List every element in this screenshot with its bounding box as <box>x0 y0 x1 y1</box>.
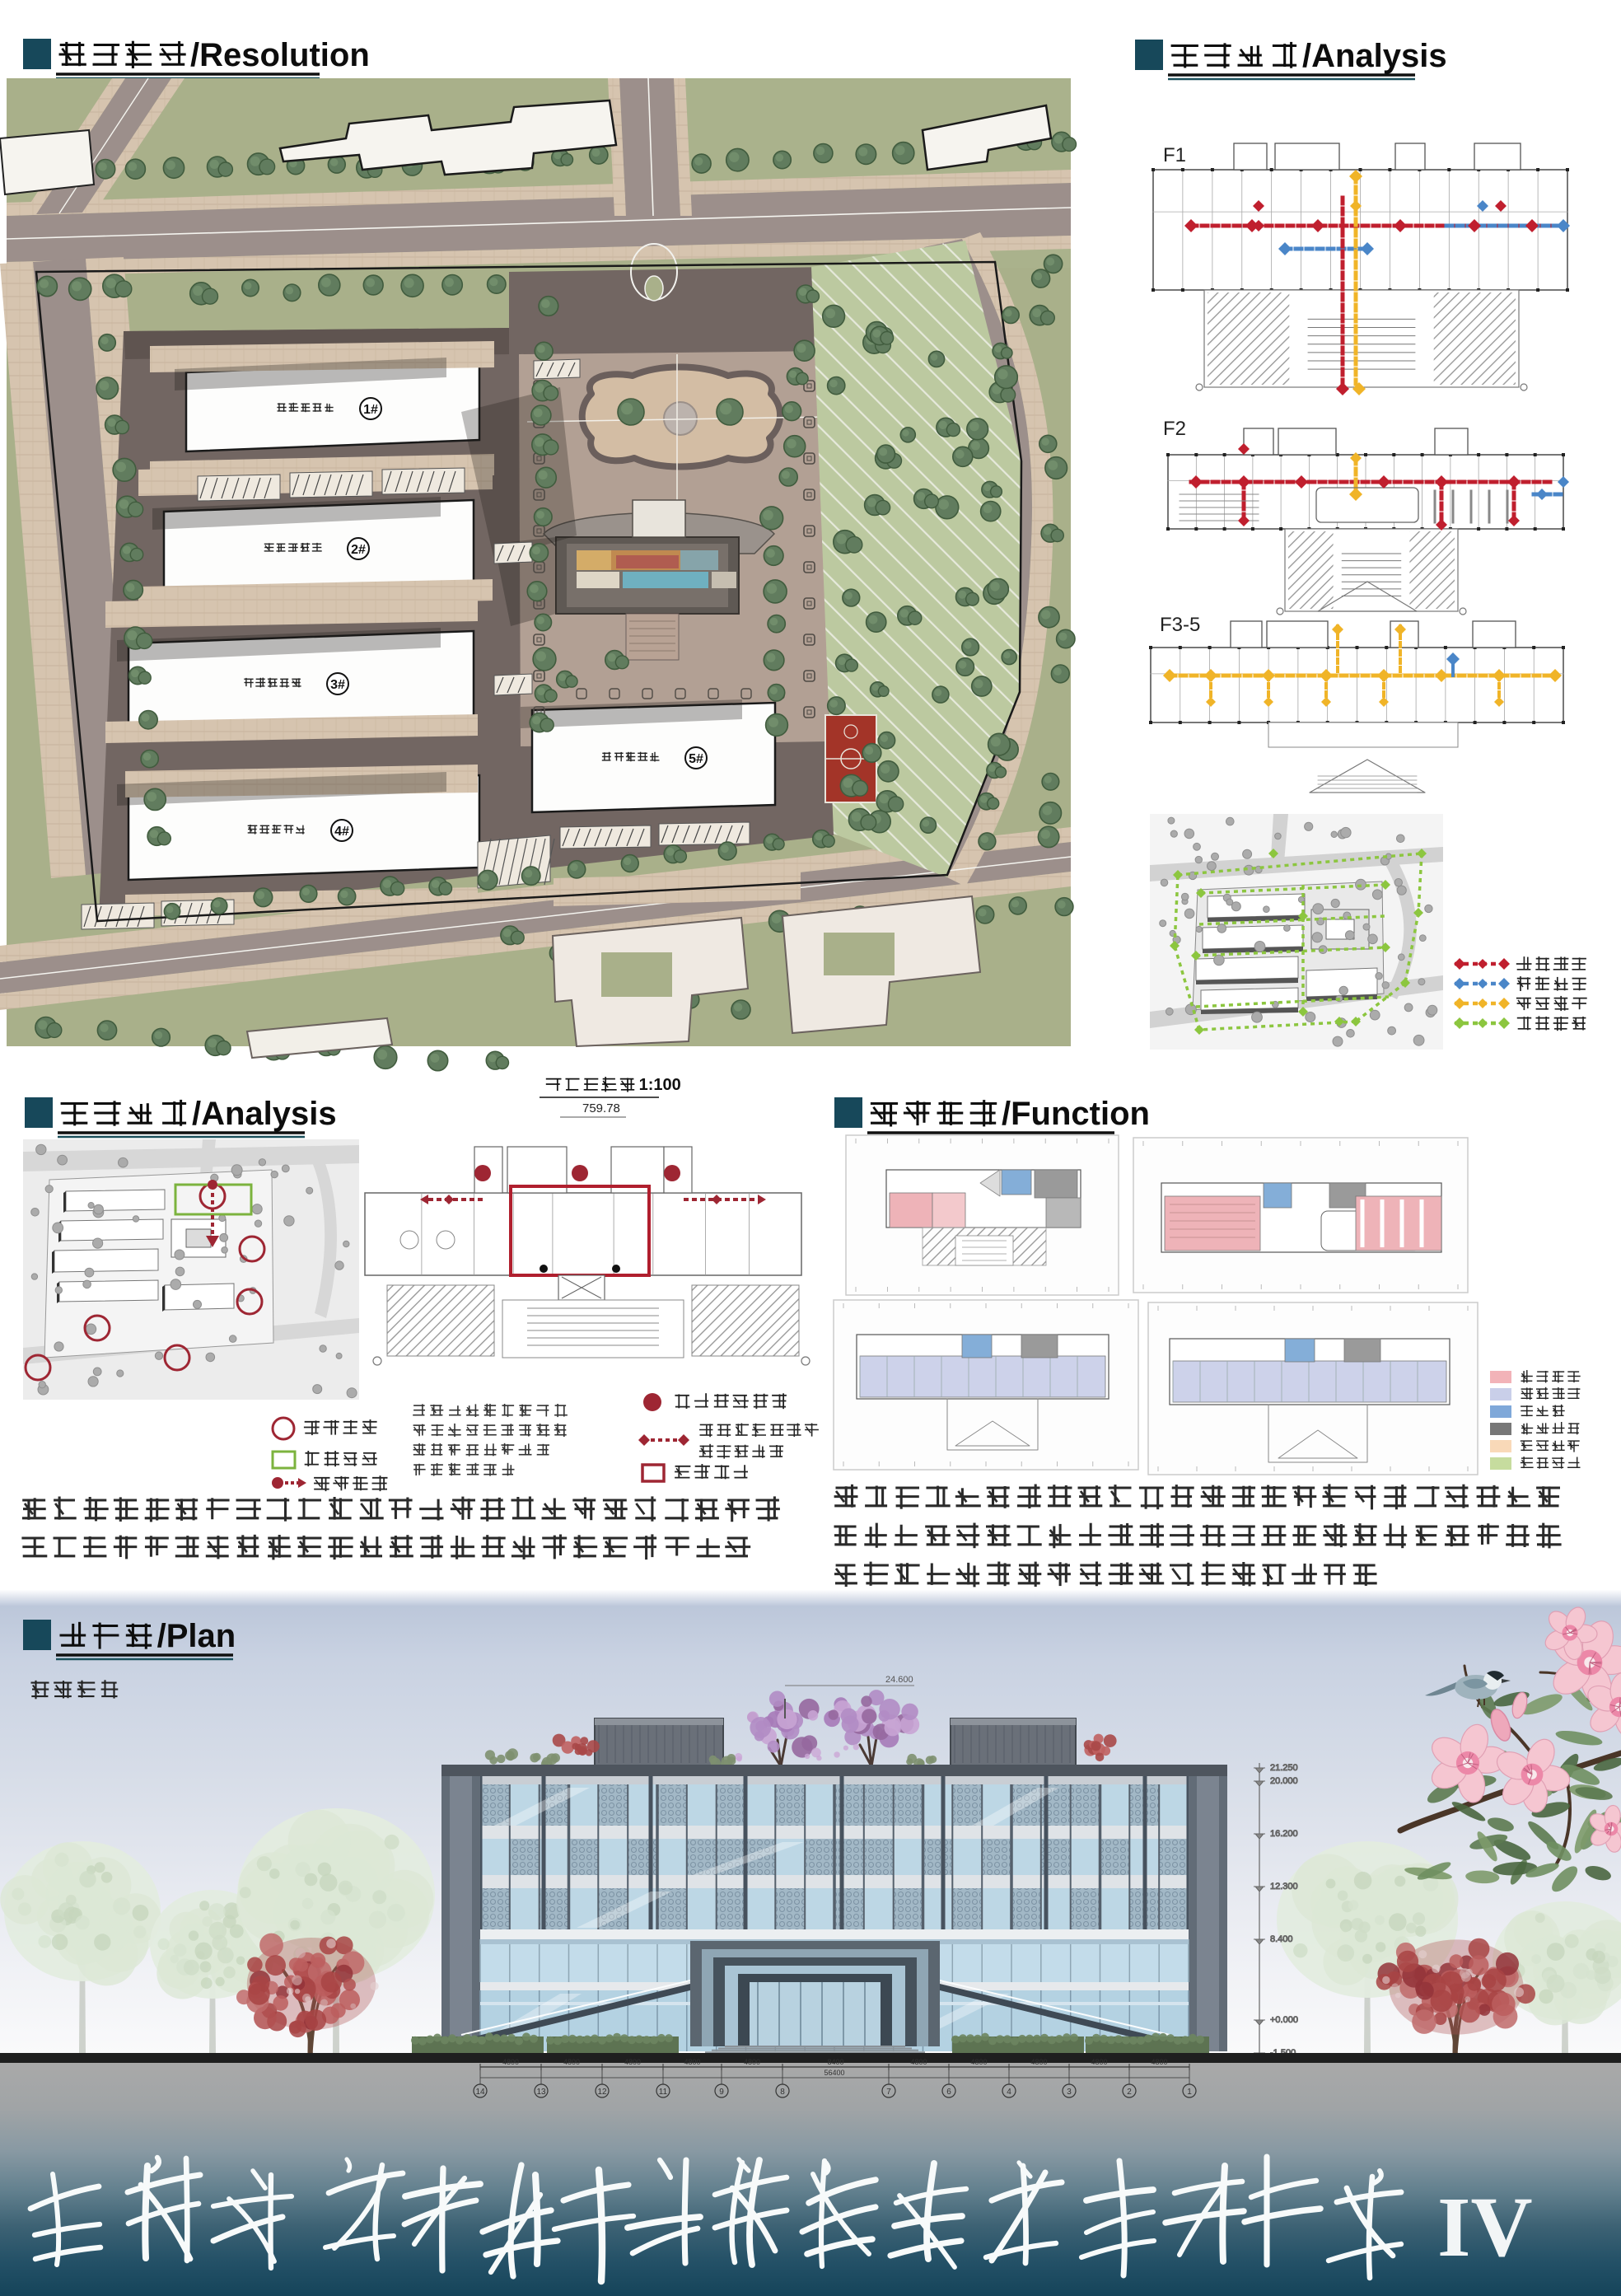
svg-text:F3-5: F3-5 <box>1160 614 1200 636</box>
svg-text:21.250: 21.250 <box>1270 1763 1298 1773</box>
svg-text:/Resolution: /Resolution <box>190 37 370 73</box>
svg-text:4800: 4800 <box>970 2058 987 2066</box>
svg-text:8.400: 8.400 <box>1270 1934 1293 1944</box>
svg-text:+0.000: +0.000 <box>1270 2015 1298 2025</box>
svg-text:/Function: /Function <box>1002 1096 1150 1132</box>
svg-text:6: 6 <box>946 2088 951 2097</box>
svg-text:2: 2 <box>1127 2088 1132 2097</box>
svg-text:12: 12 <box>597 2088 607 2097</box>
svg-text:IV: IV <box>1437 2180 1533 2275</box>
svg-text:24.600: 24.600 <box>885 1675 913 1685</box>
svg-text:4800: 4800 <box>563 2058 580 2066</box>
svg-text:4800: 4800 <box>1151 2058 1167 2066</box>
svg-text:9: 9 <box>719 2088 724 2097</box>
svg-text:4#: 4# <box>334 825 349 839</box>
svg-text:4800: 4800 <box>624 2058 641 2066</box>
svg-text:4800: 4800 <box>684 2058 700 2066</box>
svg-text:1:100: 1:100 <box>639 1076 681 1094</box>
svg-text:56400: 56400 <box>824 2069 844 2077</box>
svg-text:/Analysis: /Analysis <box>192 1096 337 1132</box>
svg-text:13: 13 <box>536 2088 546 2097</box>
svg-text:4800: 4800 <box>502 2058 519 2066</box>
svg-text:8: 8 <box>780 2088 785 2097</box>
svg-text:F1: F1 <box>1163 144 1186 166</box>
svg-text:F2: F2 <box>1163 418 1186 440</box>
svg-text:4800: 4800 <box>1030 2058 1047 2066</box>
svg-text:4: 4 <box>1007 2088 1011 2097</box>
svg-text:/Plan: /Plan <box>157 1618 236 1654</box>
svg-text:20.000: 20.000 <box>1270 1776 1298 1786</box>
svg-text:1#: 1# <box>363 403 378 417</box>
svg-text:14: 14 <box>475 2088 485 2097</box>
svg-text:5#: 5# <box>689 752 703 766</box>
svg-text:3#: 3# <box>330 678 345 692</box>
svg-text:759.78: 759.78 <box>582 1101 620 1115</box>
svg-text:11: 11 <box>659 2088 668 2097</box>
svg-text:4800: 4800 <box>1091 2058 1107 2066</box>
svg-text:2#: 2# <box>351 543 366 557</box>
svg-text:12.300: 12.300 <box>1270 1882 1298 1892</box>
svg-text:1: 1 <box>1187 2088 1192 2097</box>
svg-text:4800: 4800 <box>910 2058 927 2066</box>
svg-text:/Analysis: /Analysis <box>1302 38 1447 74</box>
svg-text:7: 7 <box>886 2088 891 2097</box>
svg-text:3: 3 <box>1067 2088 1072 2097</box>
svg-text:16.200: 16.200 <box>1270 1829 1298 1839</box>
svg-text:4800: 4800 <box>744 2058 760 2066</box>
svg-text:8400: 8400 <box>827 2058 843 2066</box>
